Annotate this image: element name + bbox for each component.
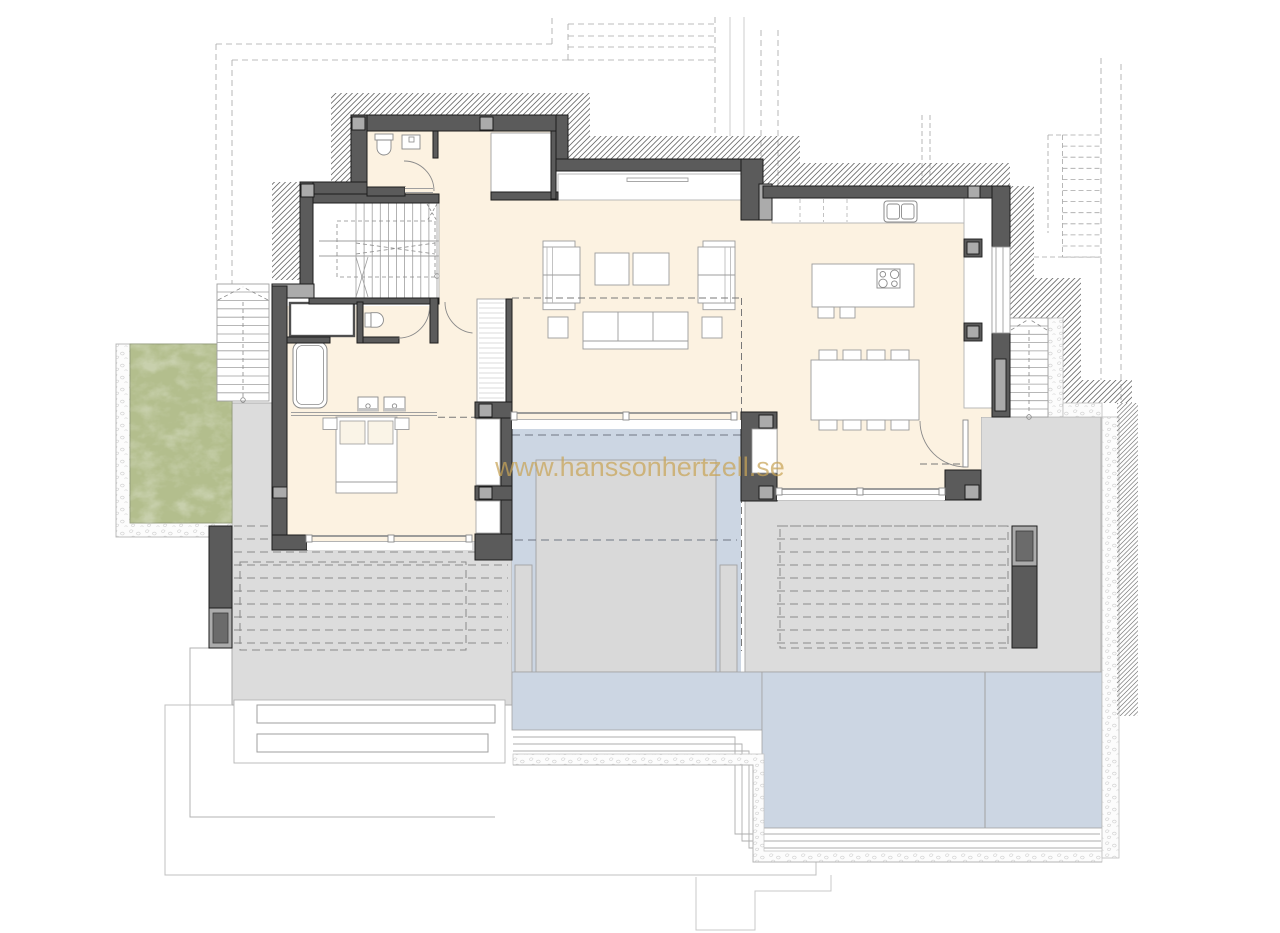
- svg-text:www.hanssonhertzell.se: www.hanssonhertzell.se: [494, 452, 785, 482]
